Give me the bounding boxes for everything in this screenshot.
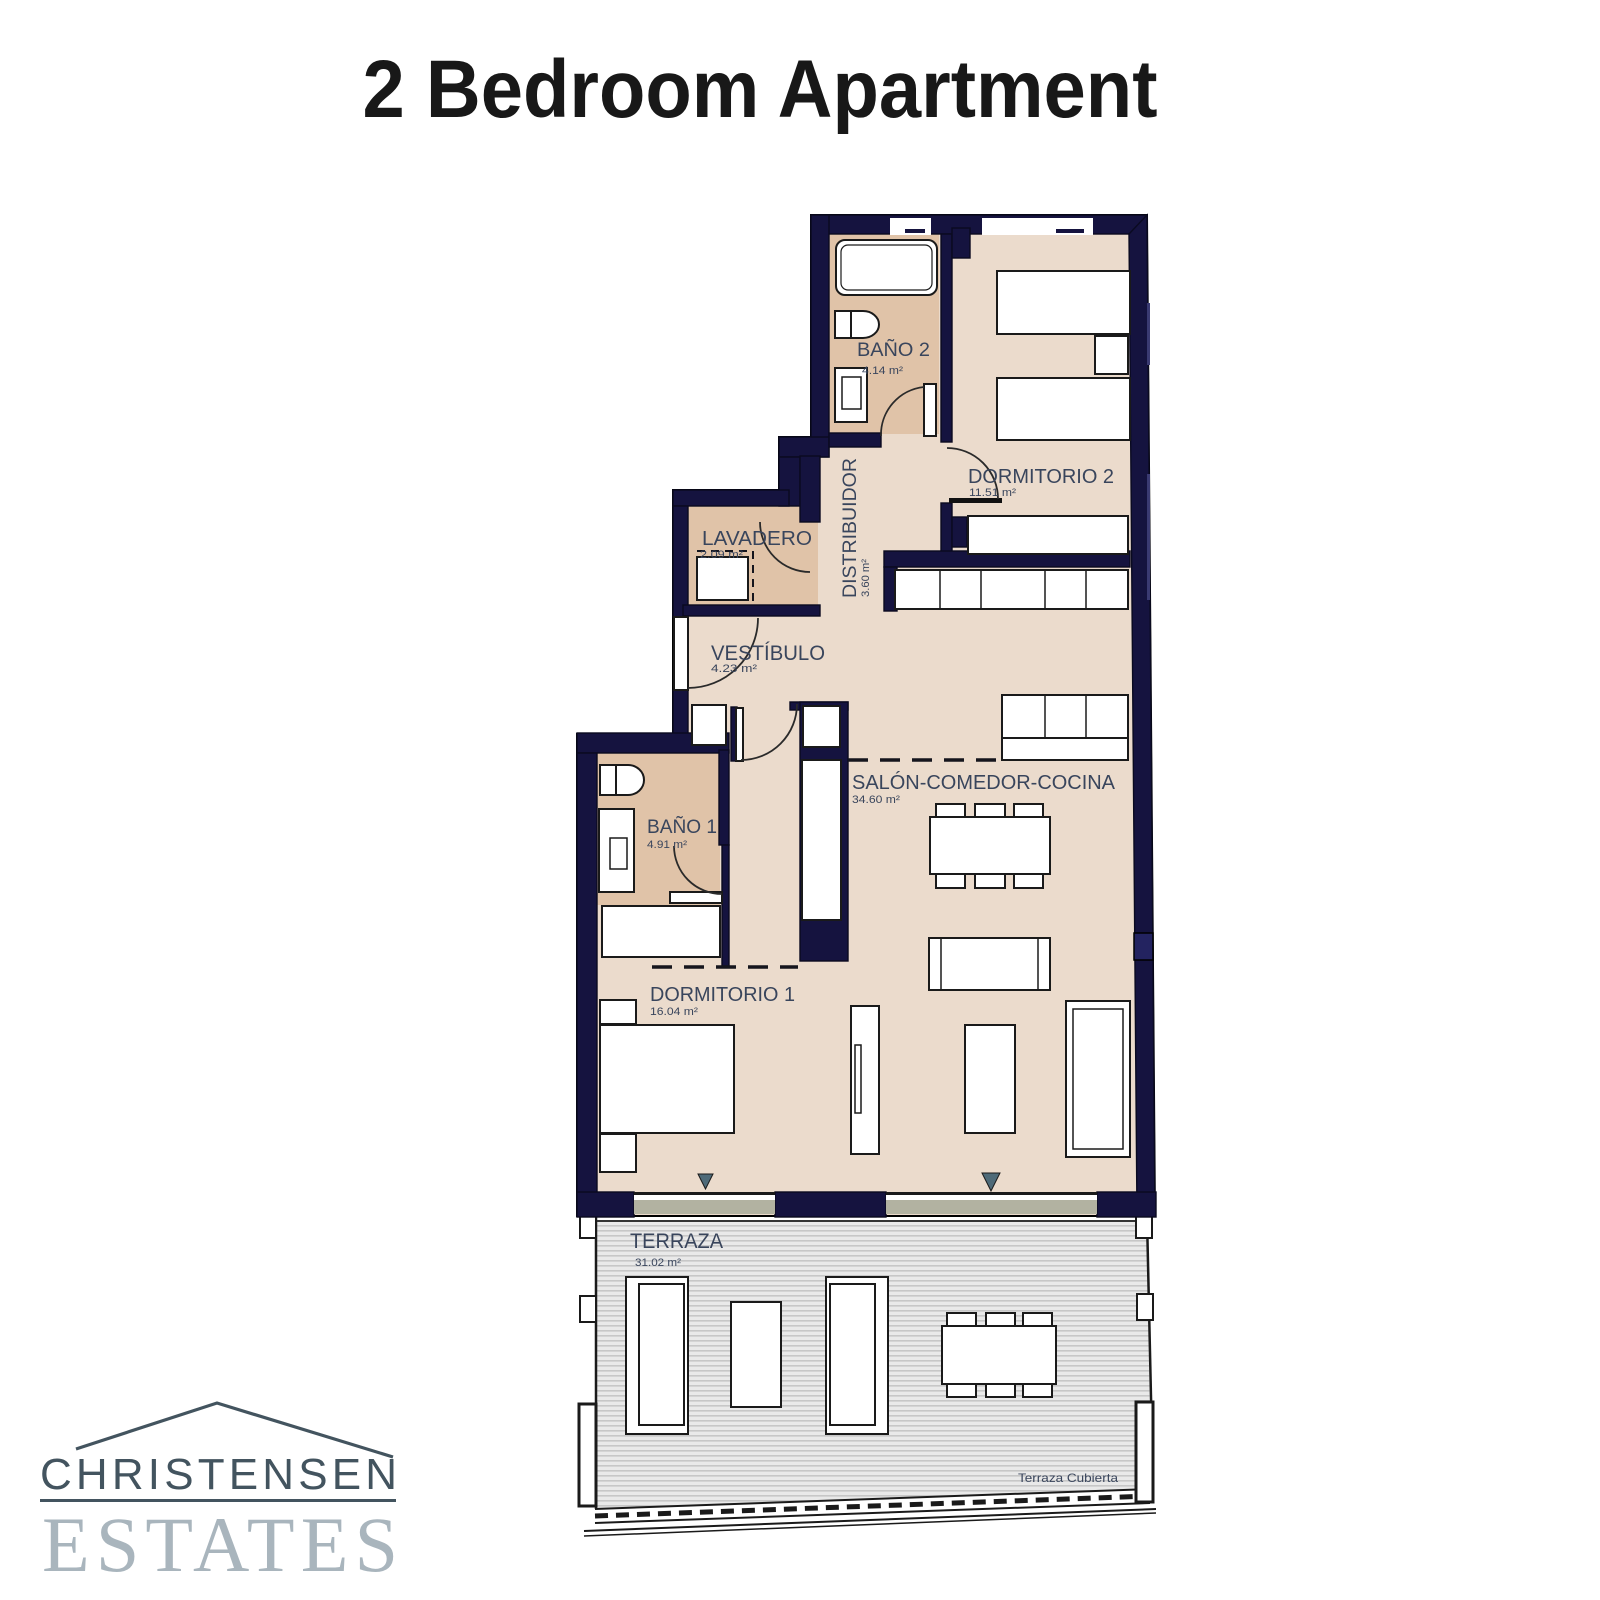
svg-text:2.09 m²: 2.09 m² [700,549,743,561]
svg-text:DORMITORIO 1: DORMITORIO 1 [650,984,795,1006]
svg-text:TERRAZA: TERRAZA [630,1230,723,1253]
svg-text:3.60 m²: 3.60 m² [860,559,872,597]
svg-text:4.23 m²: 4.23 m² [711,663,757,675]
svg-text:LAVADERO: LAVADERO [702,528,812,550]
svg-text:34.60 m²: 34.60 m² [852,794,900,806]
svg-text:11.51 m²: 11.51 m² [969,487,1016,499]
svg-text:2 Bedroom Apartment: 2 Bedroom Apartment [363,44,1158,135]
svg-text:4.14 m²: 4.14 m² [862,365,903,377]
svg-text:SALÓN-COMEDOR-COCINA: SALÓN-COMEDOR-COCINA [852,771,1116,794]
svg-text:ESTATES: ESTATES [42,1501,398,1588]
svg-text:Terraza Cubierta: Terraza Cubierta [1018,1471,1118,1485]
svg-text:16.04 m²: 16.04 m² [650,1006,698,1018]
svg-text:BAÑO 1: BAÑO 1 [647,816,717,838]
svg-text:31.02 m²: 31.02 m² [635,1257,681,1269]
svg-text:BAÑO 2: BAÑO 2 [857,339,930,361]
svg-text:CHRISTENSEN: CHRISTENSEN [40,1450,397,1499]
svg-text:DORMITORIO 2: DORMITORIO 2 [968,466,1114,488]
svg-text:4.91 m²: 4.91 m² [647,839,687,851]
svg-text:VESTÍBULO: VESTÍBULO [711,642,825,665]
svg-text:DISTRIBUIDOR: DISTRIBUIDOR [840,458,861,598]
